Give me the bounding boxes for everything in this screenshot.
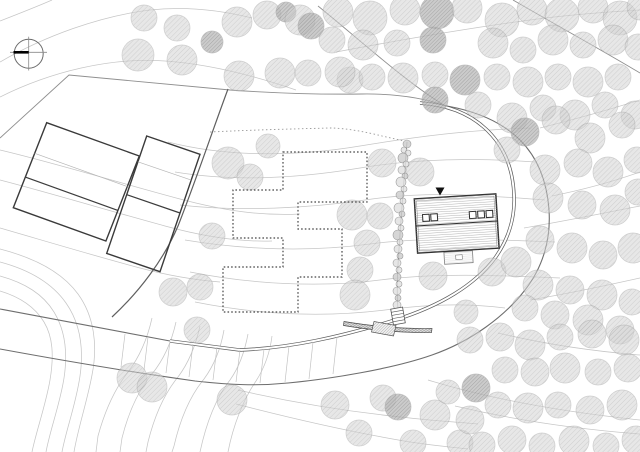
tree-canopy bbox=[570, 32, 596, 58]
tree-canopy bbox=[384, 30, 410, 56]
tree-canopy-dark bbox=[422, 87, 448, 113]
roof-line bbox=[138, 162, 191, 180]
tree-canopy bbox=[456, 406, 484, 434]
tree-canopy bbox=[347, 257, 373, 283]
tree-canopy bbox=[545, 392, 571, 418]
road-crossing-contour-tick bbox=[166, 341, 170, 373]
tree-canopy bbox=[454, 300, 478, 324]
tree-canopy bbox=[510, 37, 536, 63]
tree-canopy bbox=[533, 183, 563, 213]
shrub bbox=[393, 230, 403, 240]
property-boundary-line bbox=[230, 90, 447, 106]
tree-canopy bbox=[494, 137, 520, 163]
tree-canopy bbox=[122, 39, 154, 71]
tree-canopy bbox=[478, 28, 508, 58]
tree-canopy bbox=[513, 393, 543, 423]
tree-canopy bbox=[485, 392, 511, 418]
tree-canopy bbox=[452, 0, 482, 23]
tree-canopy bbox=[576, 396, 604, 424]
tree-canopy bbox=[353, 1, 387, 35]
tree-canopy bbox=[618, 233, 640, 263]
shrub bbox=[393, 259, 401, 267]
tree-canopy bbox=[321, 391, 349, 419]
tree-canopy bbox=[501, 247, 531, 277]
tree-canopy bbox=[337, 200, 367, 230]
tree-canopy bbox=[224, 61, 254, 91]
tree-canopy bbox=[199, 223, 225, 249]
tree-canopy bbox=[578, 320, 606, 348]
tree-canopy-layer bbox=[117, 0, 640, 452]
tree-canopy bbox=[222, 7, 252, 37]
tree-canopy bbox=[498, 426, 526, 452]
skylight bbox=[422, 214, 429, 221]
road-crossing-contour-tick bbox=[121, 334, 125, 367]
tree-canopy bbox=[217, 385, 247, 415]
tree-canopy bbox=[436, 380, 460, 404]
tree-canopy bbox=[164, 15, 190, 41]
tree-canopy bbox=[137, 372, 167, 402]
tree-canopy bbox=[609, 325, 639, 355]
tree-canopy bbox=[159, 278, 187, 306]
tree-canopy bbox=[550, 353, 580, 383]
neighbour-building bbox=[13, 123, 139, 241]
tree-canopy bbox=[521, 358, 549, 386]
shrub bbox=[401, 186, 407, 192]
tree-canopy bbox=[542, 106, 570, 134]
tree-canopy bbox=[607, 390, 637, 420]
tree-canopy-dark bbox=[420, 27, 446, 53]
stair-outline bbox=[391, 307, 406, 325]
tree-canopy bbox=[568, 191, 596, 219]
tree-canopy-dark bbox=[385, 394, 411, 420]
tree-canopy bbox=[422, 62, 448, 88]
neighbour-building-outline bbox=[13, 123, 139, 241]
tree-canopy bbox=[529, 433, 555, 452]
tree-canopy bbox=[575, 123, 605, 153]
tree-canopy bbox=[340, 280, 370, 310]
tree-canopy-dark bbox=[450, 65, 480, 95]
tree-canopy bbox=[619, 289, 640, 315]
tree-canopy bbox=[512, 295, 538, 321]
tree-canopy bbox=[367, 203, 393, 229]
terrace-detail bbox=[456, 255, 463, 260]
tree-canopy bbox=[545, 64, 571, 90]
dashed-footpath-layer bbox=[210, 128, 404, 141]
tree-canopy bbox=[557, 233, 587, 263]
roof-line bbox=[35, 153, 128, 186]
roof-line bbox=[25, 177, 118, 210]
skylight bbox=[486, 210, 493, 217]
tree-canopy bbox=[237, 164, 263, 190]
tree-canopy bbox=[585, 359, 611, 385]
tree-canopy bbox=[400, 430, 426, 452]
stair-steps bbox=[391, 307, 406, 325]
shrub bbox=[394, 245, 402, 253]
road-crossing-contour-tick bbox=[333, 337, 337, 374]
dashed-footpath bbox=[210, 128, 404, 141]
shrub bbox=[395, 295, 401, 301]
tree-canopy bbox=[547, 324, 573, 350]
tree-canopy bbox=[564, 149, 592, 177]
tree-canopy bbox=[390, 0, 420, 25]
tree-canopy bbox=[556, 276, 584, 304]
contour-line bbox=[0, 262, 81, 452]
tree-canopy bbox=[573, 67, 603, 97]
tree-canopy bbox=[131, 5, 157, 31]
shrub bbox=[396, 281, 402, 287]
tree-canopy bbox=[609, 112, 635, 138]
tree-canopy bbox=[530, 155, 560, 185]
main-house-layer bbox=[414, 188, 500, 266]
road-crossing-contour-tick bbox=[309, 342, 313, 379]
tree-canopy bbox=[295, 60, 321, 86]
tree-canopy bbox=[388, 63, 418, 93]
tree-canopy bbox=[319, 27, 345, 53]
shrub bbox=[397, 253, 403, 259]
tree-canopy bbox=[589, 241, 617, 269]
tree-canopy bbox=[465, 92, 491, 118]
shrub bbox=[397, 239, 403, 245]
tree-canopy bbox=[359, 64, 385, 90]
north-arrow-symbol bbox=[10, 37, 47, 71]
contour-line bbox=[0, 180, 272, 241]
tree-canopy bbox=[256, 134, 280, 158]
tree-canopy bbox=[600, 195, 630, 225]
tree-canopy bbox=[486, 323, 514, 351]
main-house bbox=[414, 194, 500, 266]
tree-canopy bbox=[325, 57, 355, 87]
tree-canopy bbox=[598, 25, 628, 55]
skylight bbox=[478, 211, 485, 218]
tree-canopy bbox=[513, 67, 543, 97]
road-approach-edge bbox=[0, 309, 170, 341]
tree-canopy bbox=[605, 64, 631, 90]
tree-canopy-dark bbox=[201, 31, 223, 53]
tree-canopy bbox=[419, 262, 447, 290]
tree-canopy bbox=[323, 0, 353, 27]
tree-canopy bbox=[469, 432, 495, 452]
tree-canopy-dark bbox=[420, 0, 454, 29]
tree-canopy bbox=[526, 226, 554, 254]
contour-line bbox=[0, 0, 52, 21]
tree-canopy bbox=[614, 354, 640, 382]
site-plan-canvas bbox=[0, 0, 640, 452]
shrub bbox=[396, 177, 406, 187]
tree-canopy bbox=[593, 433, 619, 452]
tree-canopy bbox=[368, 149, 396, 177]
road-crossing-contour-tick bbox=[189, 344, 193, 377]
tree-canopy bbox=[346, 420, 372, 446]
tree-canopy bbox=[184, 317, 210, 343]
tree-canopy bbox=[354, 230, 380, 256]
tree-canopy bbox=[187, 274, 213, 300]
tree-canopy bbox=[167, 45, 197, 75]
tree-canopy bbox=[593, 157, 623, 187]
tree-canopy bbox=[420, 400, 450, 430]
tree-canopy bbox=[348, 30, 378, 60]
tree-canopy bbox=[265, 58, 295, 88]
roof-line bbox=[127, 195, 180, 213]
hatched-steps bbox=[372, 322, 397, 337]
contour-line bbox=[0, 291, 52, 452]
tree-canopy bbox=[515, 330, 545, 360]
contour-line bbox=[0, 249, 95, 452]
tree-canopy bbox=[492, 357, 518, 383]
property-boundary-line bbox=[0, 75, 230, 138]
shrub bbox=[399, 211, 405, 217]
skylight bbox=[469, 211, 476, 218]
skylight bbox=[431, 214, 438, 221]
tree-canopy bbox=[622, 426, 640, 452]
shrub bbox=[393, 273, 401, 281]
tree-canopy bbox=[406, 158, 434, 186]
tree-canopy bbox=[484, 64, 510, 90]
shrub bbox=[393, 287, 401, 295]
shrub bbox=[403, 161, 409, 167]
shrub bbox=[395, 217, 403, 225]
shrub bbox=[396, 267, 402, 273]
tree-canopy bbox=[538, 25, 568, 55]
tree-canopy bbox=[592, 92, 618, 118]
contour-line bbox=[0, 276, 66, 452]
tree-canopy-dark bbox=[462, 374, 490, 402]
road-crossing-contour-tick bbox=[260, 349, 264, 383]
road-crossing-contour-tick bbox=[285, 346, 289, 382]
tree-canopy bbox=[457, 327, 483, 353]
tree-canopy bbox=[624, 147, 640, 173]
site-plan bbox=[0, 0, 640, 452]
tree-canopy bbox=[559, 426, 589, 452]
road-crossing-contour-tick bbox=[236, 350, 240, 382]
